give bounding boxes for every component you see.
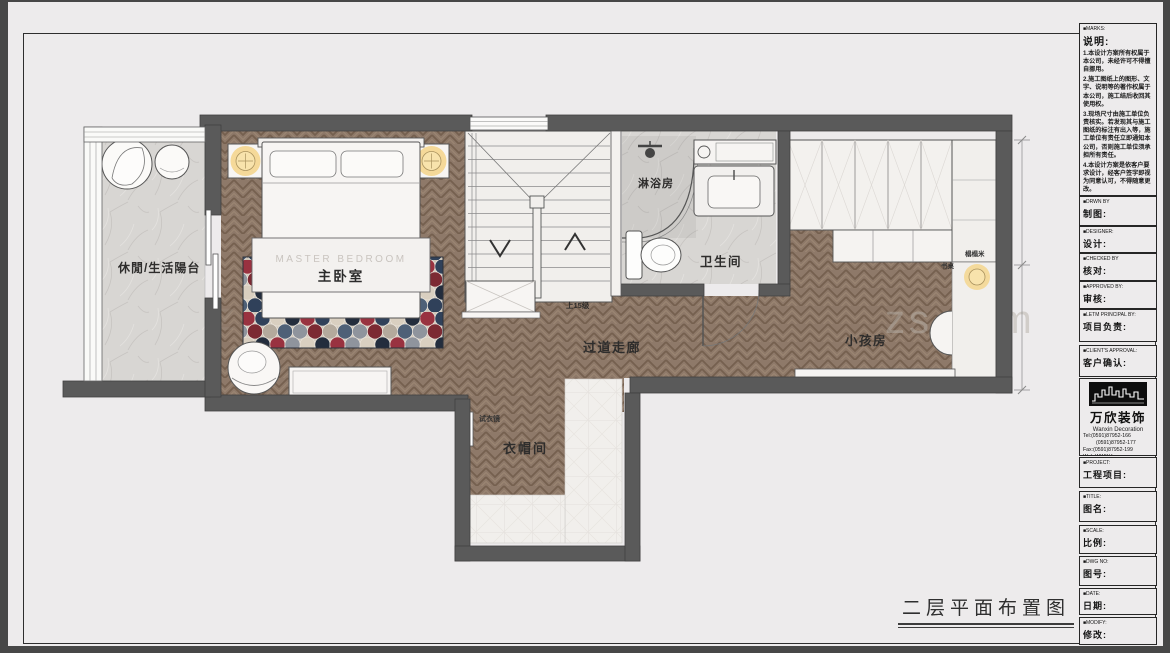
field-label-zh: 核对: xyxy=(1083,264,1153,277)
window-stairs xyxy=(470,117,548,130)
desk-lamp-icon xyxy=(964,264,990,290)
titleblock-field-drwn-by: ■DRWN BY 制图: xyxy=(1079,196,1157,226)
sliding-door-panel xyxy=(213,254,218,309)
wall-bath-bottom-a xyxy=(612,284,704,296)
field-label-en: ■DESIGNER: xyxy=(1083,229,1153,235)
pillow xyxy=(270,151,336,177)
note-item: 4.本设计方案是依客户要求设计，经客户签字即视为同意认可，不得随意更改。 xyxy=(1083,162,1153,195)
room-label-cloakroom: 衣帽间 xyxy=(503,441,548,456)
wall-corridor-bottom xyxy=(630,377,1012,393)
field-label-zh: 修改: xyxy=(1083,628,1153,641)
company-name-zh: 万欣装饰 xyxy=(1083,407,1153,426)
titleblock-field-designer: ■DESIGNER: 设计: xyxy=(1079,226,1157,253)
pillow xyxy=(341,151,403,177)
dresser xyxy=(289,367,391,397)
drawing-title-underline xyxy=(898,627,1074,628)
contact-web: Web:WWW.fzwxzs.com xyxy=(1083,454,1153,456)
field-label-en: ■TITLE: xyxy=(1083,494,1153,500)
field-label-zh: 图名: xyxy=(1083,502,1153,515)
wall-right xyxy=(996,131,1012,393)
field-label-en: ■APPROVED BY: xyxy=(1083,284,1153,290)
cabinet-row xyxy=(833,230,952,262)
drawing-title: 二层平面布置图 xyxy=(898,593,1074,628)
room-label-kids-room: 小孩房 xyxy=(844,333,887,348)
titleblock-field-scale: ■SCALE: 比例: xyxy=(1079,525,1157,554)
field-label-en: ■CHECKED BY xyxy=(1083,256,1153,262)
room-label-master-bedroom-en: MASTER BEDROOM xyxy=(275,254,406,265)
wall-stairs-bath xyxy=(611,131,621,296)
staircase xyxy=(462,131,612,318)
field-label-en: ■CLIENT'S APPROVAL: xyxy=(1083,348,1153,354)
wall-top-left xyxy=(200,115,472,131)
contact-tel1: Tel:(0591)87952-166 xyxy=(1083,433,1153,440)
field-label-zh: 图号: xyxy=(1083,567,1153,580)
side-table xyxy=(155,145,189,179)
window-balcony-left xyxy=(84,127,102,381)
field-label-zh: 设计: xyxy=(1083,237,1153,250)
field-label-en: ■PROJECT: xyxy=(1083,460,1153,466)
room-label-bathroom: 卫生间 xyxy=(700,254,742,269)
titleblock-field-modify: ■MODIFY: 修改: xyxy=(1079,617,1157,645)
titleblock-field-project: ■PROJECT: 工程项目: xyxy=(1079,457,1157,488)
titleblock-field-approved-by: ■APPROVED BY: 审核: xyxy=(1079,281,1157,309)
notes-label-en: ■MARKS: xyxy=(1083,26,1153,32)
annotation-desk: 书桌 xyxy=(941,261,955,270)
wall-balcony-bottom xyxy=(63,381,210,397)
sliding-door-panel xyxy=(206,210,211,265)
titleblock-field-date: ■DATE: 日期: xyxy=(1079,588,1157,615)
laundry-counter xyxy=(694,140,776,164)
field-label-zh: 项目负责: xyxy=(1083,320,1153,333)
armchair xyxy=(228,342,280,394)
cloakroom-cabinet-bottom xyxy=(470,495,565,543)
wall-bath-bottom-b xyxy=(759,284,790,296)
cloakroom-cabinet-right xyxy=(565,379,622,543)
field-label-en: ■LETM PRINCIPAL BY: xyxy=(1083,312,1153,318)
lamp-icon xyxy=(231,146,261,176)
titleblock-company: 万欣装饰 Wanxin Decoration Tel:(0591)87952-1… xyxy=(1079,378,1157,456)
room-label-corridor: 过道走廊 xyxy=(583,340,641,355)
wall-bath-kids xyxy=(778,131,790,290)
titleblock-field-principal: ■LETM PRINCIPAL BY: 项目负责: xyxy=(1079,309,1157,342)
note-item: 3.现场尺寸由施工单位负责核实。若发现其与施工图纸的标注有出入等，施工单位有责任… xyxy=(1083,111,1153,160)
field-label-en: ■DATE: xyxy=(1083,591,1153,597)
annotation-stairs: 上15级 xyxy=(566,300,590,310)
notes-label-zh: 说明: xyxy=(1083,33,1153,48)
field-label-en: ■MODIFY: xyxy=(1083,620,1153,626)
field-label-zh: 制图: xyxy=(1083,207,1153,220)
room-label-shower: 淋浴房 xyxy=(638,176,674,190)
sink xyxy=(708,176,760,208)
field-label-zh: 日期: xyxy=(1083,599,1153,612)
annotation-tatami: 榻榻米 xyxy=(964,249,985,258)
titleblock-notes: ■MARKS: 说明: 1.本设计方案所有权属于本公司，未经许可不得擅自挪用。 … xyxy=(1079,23,1157,196)
floor-plan: zs.com zs.com xyxy=(0,0,1170,653)
annotation-fitting-mirror: 试衣镜 xyxy=(479,414,500,423)
room-label-balcony: 休閒/生活陽台 xyxy=(117,260,200,275)
lamp-icon xyxy=(417,146,447,176)
contact-tel2: (0591)87952-177 xyxy=(1083,440,1153,447)
field-label-zh: 审核: xyxy=(1083,292,1153,305)
dimension-line xyxy=(1014,136,1030,394)
contact-fax: Fax:(0591)87952-199 xyxy=(1083,447,1153,454)
wardrobe xyxy=(788,140,952,230)
window-balcony-top xyxy=(84,127,205,142)
wall-bedroom-bottom xyxy=(205,395,468,411)
field-label-en: ■SCALE: xyxy=(1083,528,1153,534)
titleblock-field-client-approval: ■CLIENT'S APPROVAL: 客户确认: xyxy=(1079,345,1157,377)
wall-ext-right xyxy=(625,393,640,561)
company-logo xyxy=(1089,382,1147,406)
drawing-sheet: zs.com zs.com xyxy=(0,0,1170,653)
field-label-zh: 工程项目: xyxy=(1083,468,1153,481)
wall-balcony-divider-top xyxy=(205,125,221,215)
titleblock-field-checked-by: ■CHECKED BY 核对: xyxy=(1079,253,1157,281)
wall-top-right xyxy=(546,115,1012,131)
wall-ext-left xyxy=(455,399,470,561)
field-label-zh: 客户确认: xyxy=(1083,356,1153,369)
note-item: 2.施工图纸上的图形、文字、说明等的著作权属于本公司，施工结后收回其使用权。 xyxy=(1083,76,1153,109)
titleblock-field-title: ■TITLE: 图名: xyxy=(1079,491,1157,522)
field-label-en: ■DWG NO: xyxy=(1083,559,1153,565)
tatami-cabinet xyxy=(952,140,996,262)
note-item: 1.本设计方案所有权属于本公司，未经许可不得擅自挪用。 xyxy=(1083,50,1153,75)
titleblock-field-dwg-no: ■DWG NO: 图号: xyxy=(1079,556,1157,586)
field-label-en: ■DRWN BY xyxy=(1083,199,1153,205)
wall-balcony-divider-bottom xyxy=(205,298,221,397)
room-label-master-bedroom: 主卧室 xyxy=(318,268,365,284)
drawing-title-text: 二层平面布置图 xyxy=(898,593,1074,625)
wall-ext-bottom xyxy=(455,546,640,561)
field-label-zh: 比例: xyxy=(1083,536,1153,549)
